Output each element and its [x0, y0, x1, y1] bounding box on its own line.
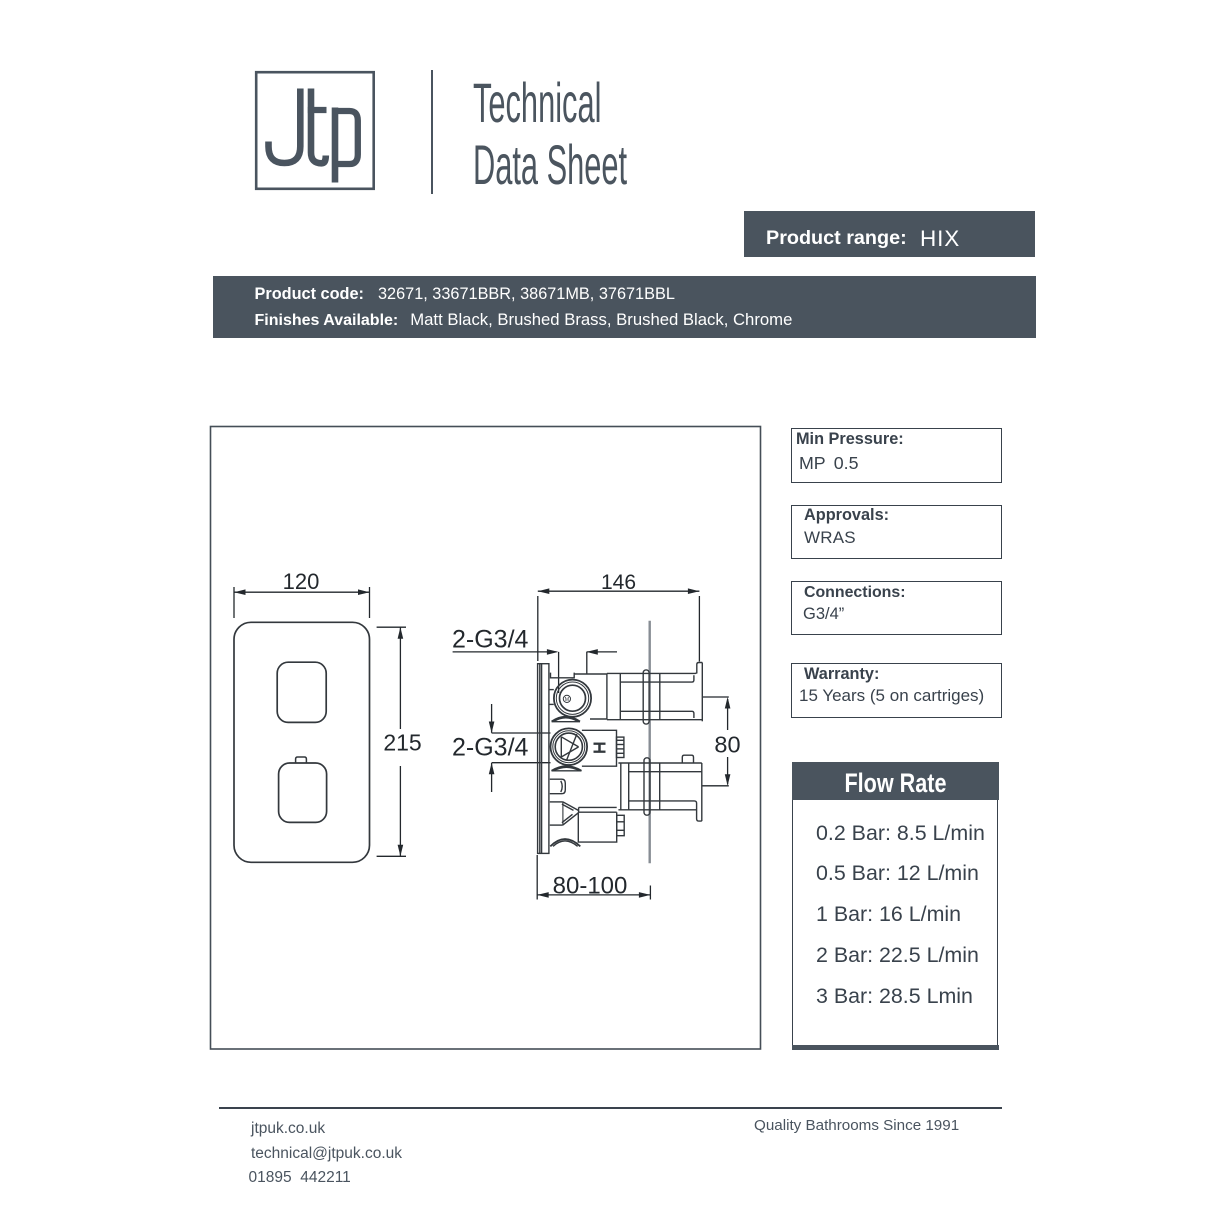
svg-text:M: M	[565, 697, 569, 703]
svg-text:80: 80	[714, 732, 740, 758]
svg-text:215: 215	[383, 730, 421, 756]
svg-text:146: 146	[601, 571, 636, 594]
svg-text:80-100: 80-100	[553, 873, 628, 900]
svg-text:2-G3/4: 2-G3/4	[452, 626, 529, 654]
svg-text:120: 120	[283, 569, 320, 594]
svg-text:2-G3/4: 2-G3/4	[452, 734, 529, 762]
